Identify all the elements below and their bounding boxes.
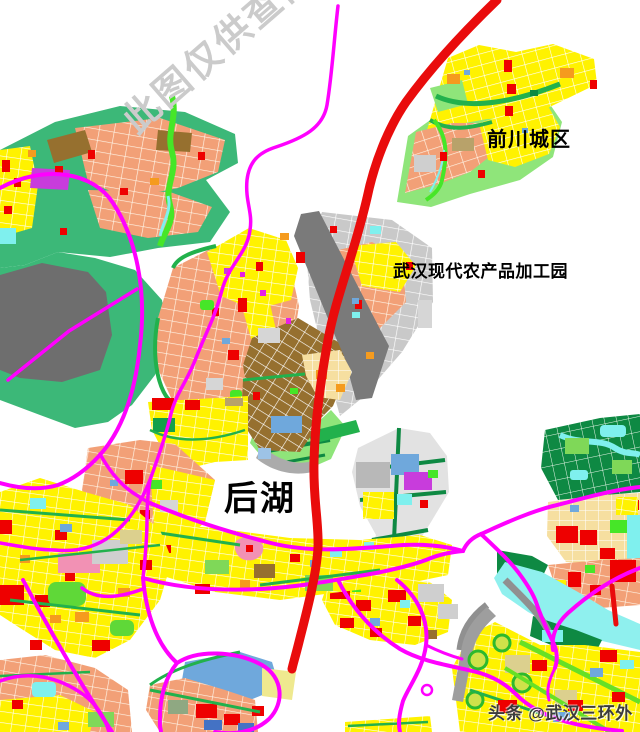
attribution-text: 头条 @武汉三环外 <box>488 699 633 724</box>
planning-map-screenshot: 此图仅供查阅 前川城区 武汉现代农产品加工园 后湖 头条 @武汉三环外 <box>0 0 640 732</box>
label-agri-park: 武汉现代农产品加工园 <box>393 263 568 280</box>
zone-cluster-bottom-center <box>146 652 296 732</box>
label-qianchuan: 前川城区 <box>487 130 571 150</box>
label-houhu: 后湖 <box>224 482 296 516</box>
planning-map-canvas <box>0 0 640 732</box>
